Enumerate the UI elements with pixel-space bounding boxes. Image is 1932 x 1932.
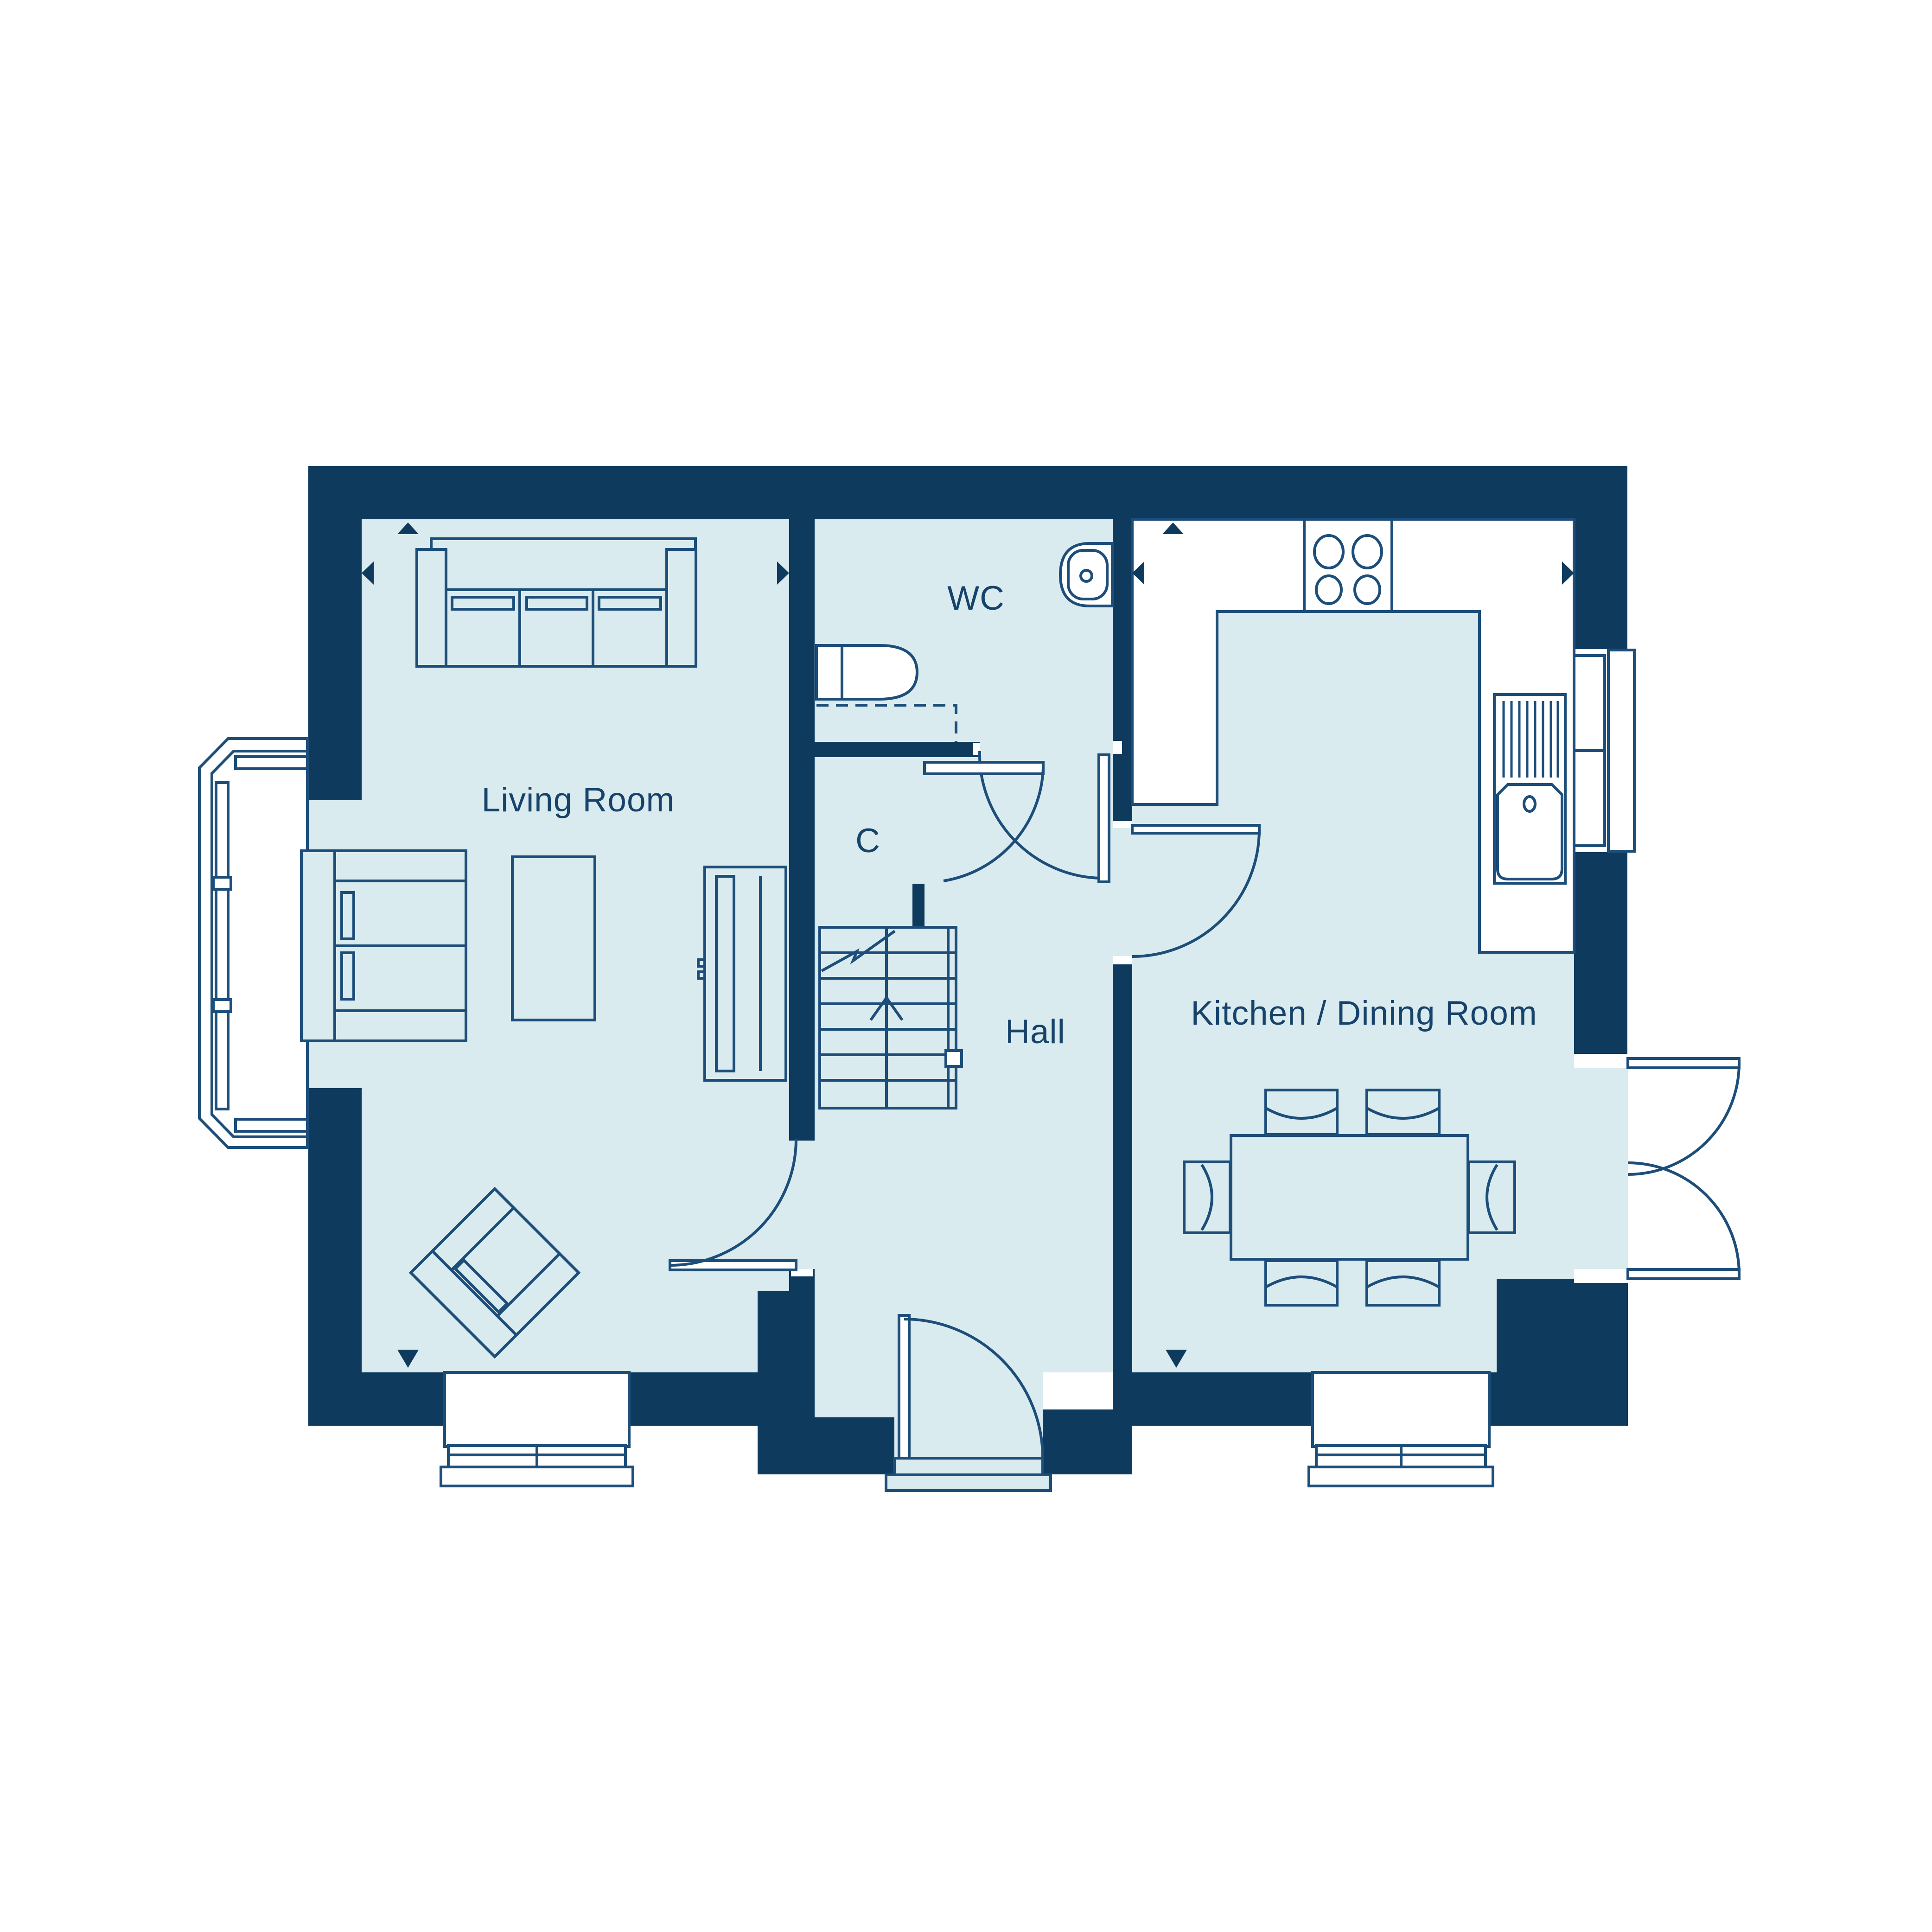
sink-icon: [1494, 695, 1565, 883]
stair-newel-post: [946, 1051, 962, 1066]
floor-plan-page: Living Room WC C Hall Kitchen / Dining R…: [0, 0, 1932, 1932]
cupboard-label: C: [855, 822, 880, 860]
dining-chair: [1266, 1261, 1337, 1305]
bay-window: [199, 739, 307, 1148]
stair-newel-wall-stub: [912, 884, 925, 926]
dining-chair: [1469, 1162, 1515, 1233]
vestibule-wall-right: [1043, 1409, 1132, 1474]
kitchen-window-right: [1574, 649, 1634, 852]
door-jamb-cap: [1574, 1269, 1628, 1283]
wall-left-upper: [308, 466, 362, 800]
door-jamb-cap: [1113, 956, 1132, 964]
hall-label: Hall: [1005, 1013, 1065, 1051]
french-door-opening-floor: [1574, 1058, 1628, 1279]
door-jamb-cap: [1113, 741, 1122, 754]
basin-icon: [1060, 543, 1112, 606]
sofa-two-seat: [301, 851, 466, 1041]
wall-bottom-left: [308, 1372, 445, 1426]
living-room-label: Living Room: [482, 781, 675, 819]
bay-window-transom: [213, 1000, 231, 1012]
bay-window-glazing: [216, 783, 228, 1109]
sofa-three-seat: [417, 539, 696, 666]
wall-hall-kitchen-lower: [1113, 964, 1132, 1372]
wall-bottom-living: [629, 1372, 760, 1426]
bay-window-glazing-bottom: [236, 1119, 307, 1131]
wall-hall-kitchen-upper: [1113, 519, 1132, 821]
wall-wc-bottom: [815, 742, 980, 757]
wall-right-upper: [1574, 466, 1627, 655]
kitchen-dining-label: Kitchen / Dining Room: [1191, 995, 1537, 1032]
dining-chair: [1266, 1090, 1337, 1135]
dining-table: [1231, 1135, 1468, 1259]
front-door-step: [886, 1475, 1051, 1491]
door-jamb-cap: [1113, 821, 1132, 828]
door-jamb-cap: [1574, 1054, 1628, 1068]
wall-bottom-kitchen-left: [1113, 1372, 1313, 1426]
wall-right-mid: [1574, 847, 1627, 1054]
vestibule-wall-left-arm: [758, 1417, 894, 1474]
wall-top: [308, 466, 1627, 519]
tv-unit: [698, 867, 786, 1080]
floor-plan-drawing: Living Room WC C Hall Kitchen / Dining R…: [0, 0, 1932, 1932]
bay-window-glazing-top: [236, 757, 307, 769]
wall-living-hall: [789, 519, 815, 1141]
dining-chair: [1367, 1261, 1439, 1305]
toilet-icon: [816, 645, 917, 699]
kitchen-window-bottom: [1309, 1372, 1493, 1486]
living-room-window: [441, 1372, 633, 1486]
front-door-threshold: [894, 1458, 1043, 1475]
wc-label: WC: [947, 580, 1005, 617]
coffee-table: [512, 857, 595, 1020]
bay-window-transom: [213, 877, 231, 889]
dining-chair: [1184, 1162, 1230, 1233]
wall-bottom-kitchen-right: [1489, 1372, 1627, 1426]
dining-chair: [1367, 1090, 1439, 1135]
